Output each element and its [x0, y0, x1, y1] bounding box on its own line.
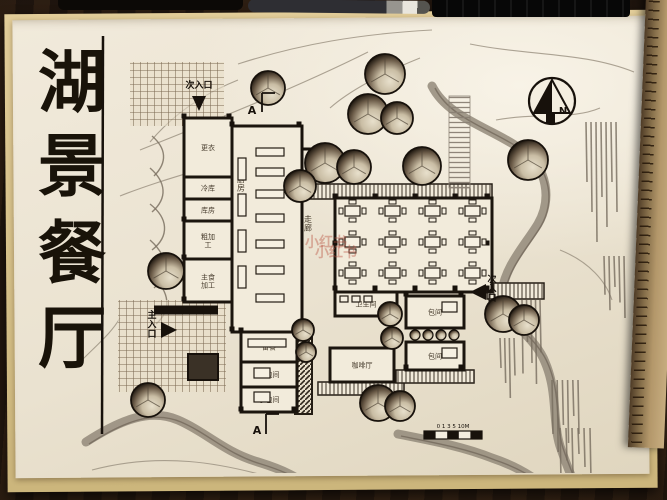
- chair: [389, 249, 396, 253]
- reed-stroke: [604, 256, 605, 295]
- reed-stroke: [578, 428, 579, 454]
- chair: [379, 239, 383, 245]
- column-dot: [459, 292, 464, 297]
- reed-stroke: [619, 256, 620, 303]
- reed-stroke: [596, 122, 597, 242]
- dark-object: [58, 0, 243, 10]
- column-dot: [239, 328, 244, 333]
- chair: [442, 239, 446, 245]
- chair: [482, 208, 486, 214]
- counter: [254, 368, 270, 378]
- entrance-label: 主入口: [146, 309, 156, 340]
- room-storage-label: 库房: [201, 206, 215, 215]
- scale-bar-cell: [447, 431, 459, 439]
- title-char: 厅: [38, 300, 106, 379]
- chair: [442, 270, 446, 276]
- title-rule-line: [102, 36, 103, 434]
- counter: [442, 348, 457, 358]
- chair: [402, 208, 406, 214]
- chair: [482, 239, 486, 245]
- column-dot: [373, 286, 378, 291]
- dining-table: [345, 268, 360, 278]
- entrance-label: 次入口: [486, 273, 496, 304]
- reed-stroke: [552, 380, 553, 434]
- deck-private-boards: [396, 370, 474, 383]
- reed-stroke: [614, 256, 615, 287]
- reed-stroke: [505, 338, 506, 383]
- chair: [349, 280, 356, 284]
- dining-table: [465, 206, 480, 216]
- reed-stroke: [573, 380, 574, 416]
- chair: [339, 208, 343, 214]
- floor-plan-drawing: 更衣冷库库房粗加工主食加工厨房备餐小包间小包间卫生间咖啡厅包间包间走廊次入口主入…: [0, 0, 667, 500]
- reed-stroke: [578, 380, 579, 434]
- counter: [256, 266, 284, 274]
- chair: [469, 218, 476, 222]
- chair: [429, 249, 436, 253]
- stream-edge: [401, 436, 547, 488]
- reed-stroke: [609, 256, 610, 310]
- reed-stroke: [586, 122, 587, 182]
- chair: [419, 239, 423, 245]
- column-dot: [453, 286, 458, 291]
- reed-stroke: [601, 122, 602, 197]
- chair: [429, 218, 436, 222]
- counter: [248, 339, 286, 347]
- dining-table: [345, 206, 360, 216]
- photo-of-hand-drawn-plan: 更衣冷库库房粗加工主食加工厨房备餐小包间小包间卫生间咖啡厅包间包间走廊次入口主入…: [0, 0, 667, 500]
- chair: [459, 270, 463, 276]
- column-dot: [230, 327, 235, 332]
- column-dot: [239, 407, 244, 412]
- chair: [389, 200, 396, 204]
- room-changing-label: 更衣: [201, 143, 215, 152]
- column-dot: [453, 194, 458, 199]
- slope-scribble: [152, 136, 164, 176]
- title-char: 湖: [38, 44, 106, 123]
- column-dot: [182, 297, 187, 302]
- column-dot: [182, 217, 187, 222]
- counter: [340, 296, 348, 302]
- pergola-plaza-grid: [130, 62, 224, 126]
- column-dot: [182, 255, 187, 260]
- column-dot: [373, 194, 378, 199]
- keyboard: [432, 0, 630, 17]
- north-arrow-tab: [546, 113, 555, 124]
- column-dot: [459, 365, 464, 370]
- scale-bar-cell: [424, 431, 436, 439]
- scale-bar-label: 0 1 3 5 10M: [437, 424, 470, 430]
- chair: [482, 270, 486, 276]
- chair: [469, 200, 476, 204]
- title-char: 景: [38, 128, 106, 207]
- chair: [389, 218, 396, 222]
- chair: [349, 200, 356, 204]
- column-dot: [413, 194, 418, 199]
- counter: [256, 148, 284, 156]
- chair: [389, 280, 396, 284]
- label-corridor: 走廊: [304, 215, 312, 232]
- chair: [469, 249, 476, 253]
- bush: [449, 330, 459, 340]
- column-dot: [230, 122, 235, 127]
- steps-north: [449, 96, 470, 188]
- title-char: 餐: [38, 215, 106, 294]
- chair: [349, 262, 356, 266]
- column-dot: [333, 286, 338, 291]
- reed-stroke: [566, 428, 567, 461]
- north-label: N: [559, 106, 567, 117]
- chair: [402, 270, 406, 276]
- counter: [352, 296, 360, 302]
- reed-stroke: [562, 380, 563, 425]
- room-staple-prep-label: 主食加工: [201, 273, 215, 290]
- watermark: 小红书: [315, 244, 357, 261]
- counter: [256, 240, 284, 248]
- chair: [362, 208, 366, 214]
- chair: [442, 208, 446, 214]
- chair: [339, 270, 343, 276]
- chair: [419, 208, 423, 214]
- column-dot: [404, 292, 409, 297]
- chair: [429, 200, 436, 204]
- column-dot: [182, 114, 187, 119]
- stream: [398, 434, 544, 486]
- reed-stroke: [584, 428, 585, 467]
- dining-table: [465, 237, 480, 247]
- bush: [410, 330, 420, 340]
- chair: [402, 239, 406, 245]
- counter: [256, 214, 284, 222]
- chair: [469, 280, 476, 284]
- reed-stroke: [514, 338, 515, 376]
- chair: [459, 239, 463, 245]
- planter-box: [188, 354, 218, 380]
- reed-stroke: [611, 122, 612, 182]
- counter: [254, 392, 270, 402]
- column-dot: [413, 286, 418, 291]
- chair: [429, 280, 436, 284]
- column-dot: [485, 194, 490, 199]
- dining-table: [425, 268, 440, 278]
- section-marker-line: [266, 414, 279, 434]
- reed-stroke: [509, 338, 510, 398]
- reed-stroke: [572, 428, 573, 474]
- bush: [436, 330, 446, 340]
- room-private-1-label: 包间: [428, 308, 442, 317]
- chair: [362, 239, 366, 245]
- column-dot: [333, 194, 338, 199]
- column-dot: [227, 114, 232, 119]
- chair: [379, 270, 383, 276]
- reed-stroke: [500, 338, 501, 368]
- dining-table: [385, 268, 400, 278]
- section-marker-label: A: [248, 104, 257, 117]
- counter: [238, 158, 246, 180]
- counter: [256, 294, 284, 302]
- chair: [362, 270, 366, 276]
- reed-stroke: [606, 122, 607, 227]
- chair: [459, 208, 463, 214]
- counter: [256, 190, 284, 198]
- reed-stroke: [560, 428, 561, 480]
- entrance-label: 次入口: [185, 79, 212, 91]
- chair: [389, 231, 396, 235]
- reed-stroke: [540, 300, 541, 353]
- chair: [429, 262, 436, 266]
- counter: [256, 168, 284, 176]
- chair: [349, 218, 356, 222]
- marker-pen: [248, 0, 430, 14]
- room-cafe-label: 咖啡厅: [352, 361, 373, 370]
- counter: [442, 302, 457, 312]
- counter: [238, 266, 246, 288]
- room-cold-store-label: 冷库: [201, 184, 215, 193]
- room-private-2-label: 包间: [428, 352, 442, 361]
- reed-stroke: [557, 380, 558, 452]
- chair: [419, 270, 423, 276]
- dining-table: [465, 268, 480, 278]
- chair: [349, 231, 356, 235]
- reed-stroke: [568, 380, 569, 443]
- dining-table: [425, 237, 440, 247]
- chair: [389, 262, 396, 266]
- slope-scribble: [150, 204, 165, 250]
- counter: [238, 230, 246, 252]
- column-dot: [297, 122, 302, 127]
- dining-table: [425, 206, 440, 216]
- chair: [379, 208, 383, 214]
- column-dot: [404, 365, 409, 370]
- dining-table: [385, 237, 400, 247]
- bush: [423, 330, 433, 340]
- reed-stroke: [590, 428, 591, 480]
- chair: [469, 231, 476, 235]
- reed-stroke: [591, 122, 592, 212]
- counter: [364, 296, 372, 302]
- section-marker-label: A: [253, 424, 262, 437]
- dining-table: [385, 206, 400, 216]
- reed-stroke: [616, 122, 617, 212]
- reed-stroke: [624, 256, 625, 318]
- counter: [238, 194, 246, 216]
- scale-bar-cell: [470, 431, 482, 439]
- contour-line: [238, 30, 432, 64]
- contour-line: [470, 44, 634, 72]
- column-dot: [292, 407, 297, 412]
- chair: [469, 262, 476, 266]
- chair: [429, 231, 436, 235]
